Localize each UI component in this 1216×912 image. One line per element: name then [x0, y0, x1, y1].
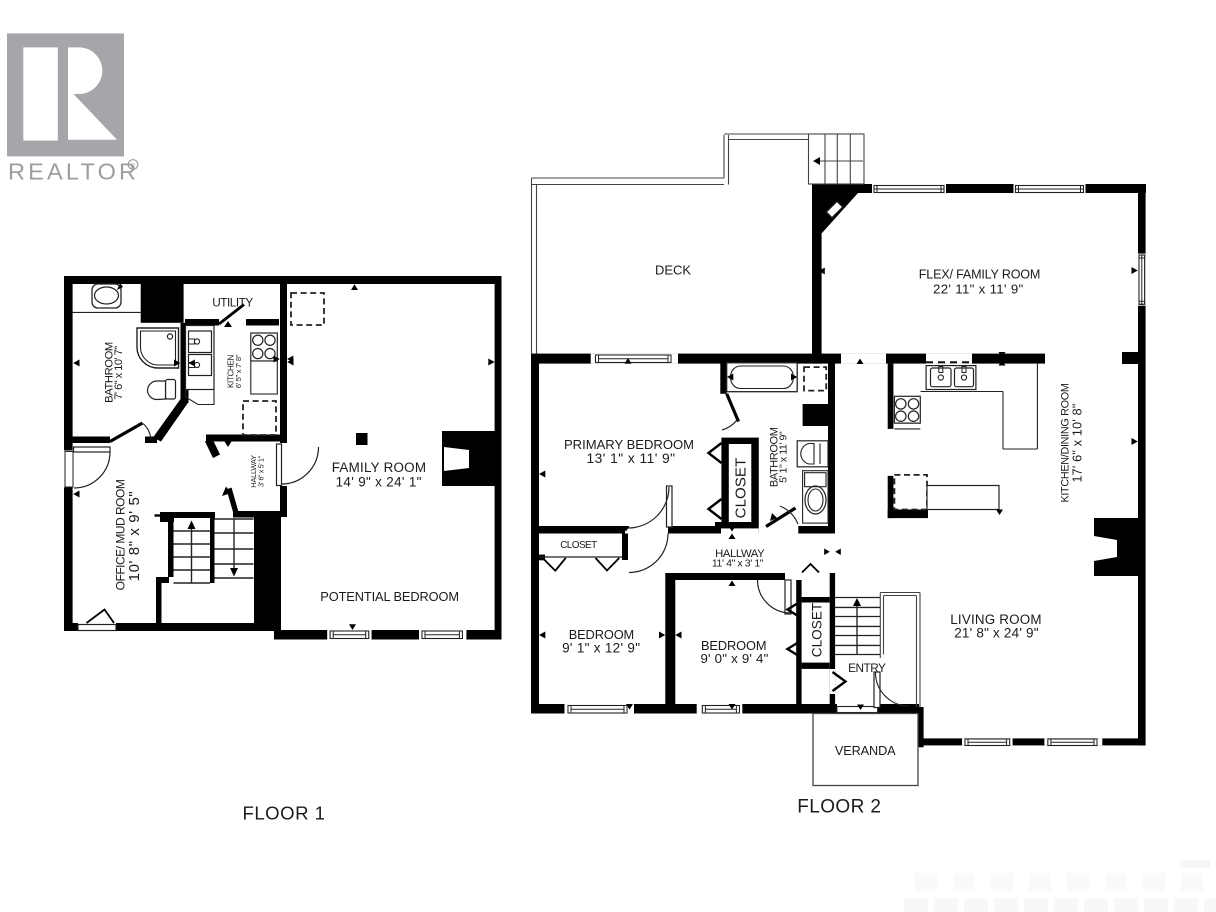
svg-text:22' 11" x 11' 9": 22' 11" x 11' 9"	[933, 282, 1024, 297]
svg-text:REALTOR: REALTOR	[8, 159, 139, 185]
svg-text:7' 6" x 10' 7": 7' 6" x 10' 7"	[113, 346, 125, 400]
svg-text:11' 4" x 3' 1": 11' 4" x 3' 1"	[712, 558, 764, 570]
svg-text:PRIMARY BEDROOM: PRIMARY BEDROOM	[564, 437, 694, 452]
svg-text:POTENTIAL BEDROOM: POTENTIAL BEDROOM	[320, 589, 459, 604]
svg-text:FLOOR 1: FLOOR 1	[242, 802, 325, 823]
svg-text:HALLWAY: HALLWAY	[249, 455, 258, 488]
svg-text:17' 6" x 10' 8": 17' 6" x 10' 8"	[1071, 403, 1085, 482]
svg-text:14' 9" x 24' 1": 14' 9" x 24' 1"	[336, 475, 422, 490]
svg-text:CLOSET: CLOSET	[560, 540, 597, 551]
svg-text:LIVING ROOM: LIVING ROOM	[950, 612, 1041, 627]
svg-text:R: R	[131, 163, 136, 170]
svg-text:CLOSET: CLOSET	[810, 603, 825, 657]
svg-text:FAMILY ROOM: FAMILY ROOM	[332, 460, 427, 475]
svg-text:6' 5" x 7' 8": 6' 5" x 7' 8"	[234, 354, 243, 388]
svg-text:5' 1" x 11' 9": 5' 1" x 11' 9"	[778, 431, 790, 483]
svg-text:ENTRY: ENTRY	[848, 661, 886, 675]
svg-text:UTILITY: UTILITY	[212, 296, 253, 310]
svg-text:VERANDA: VERANDA	[835, 744, 896, 758]
svg-text:9' 1" x 12' 9": 9' 1" x 12' 9"	[562, 641, 640, 656]
svg-text:21' 8" x 24' 9": 21' 8" x 24' 9"	[954, 626, 1039, 641]
svg-text:3' 6" x 5' 1": 3' 6" x 5' 1"	[259, 455, 266, 486]
svg-text:CLOSET: CLOSET	[733, 458, 750, 519]
svg-text:DECK: DECK	[655, 263, 691, 278]
svg-text:FLOOR 2: FLOOR 2	[797, 797, 881, 818]
svg-text:10' 8" x 9' 5": 10' 8" x 9' 5"	[126, 491, 143, 582]
svg-text:9' 0" x 9' 4": 9' 0" x 9' 4"	[700, 651, 768, 666]
svg-text:BEDROOM: BEDROOM	[569, 627, 634, 642]
svg-text:13' 1" x 11' 9": 13' 1" x 11' 9"	[586, 451, 675, 466]
svg-text:FLEX/ FAMILY ROOM: FLEX/ FAMILY ROOM	[919, 267, 1040, 281]
